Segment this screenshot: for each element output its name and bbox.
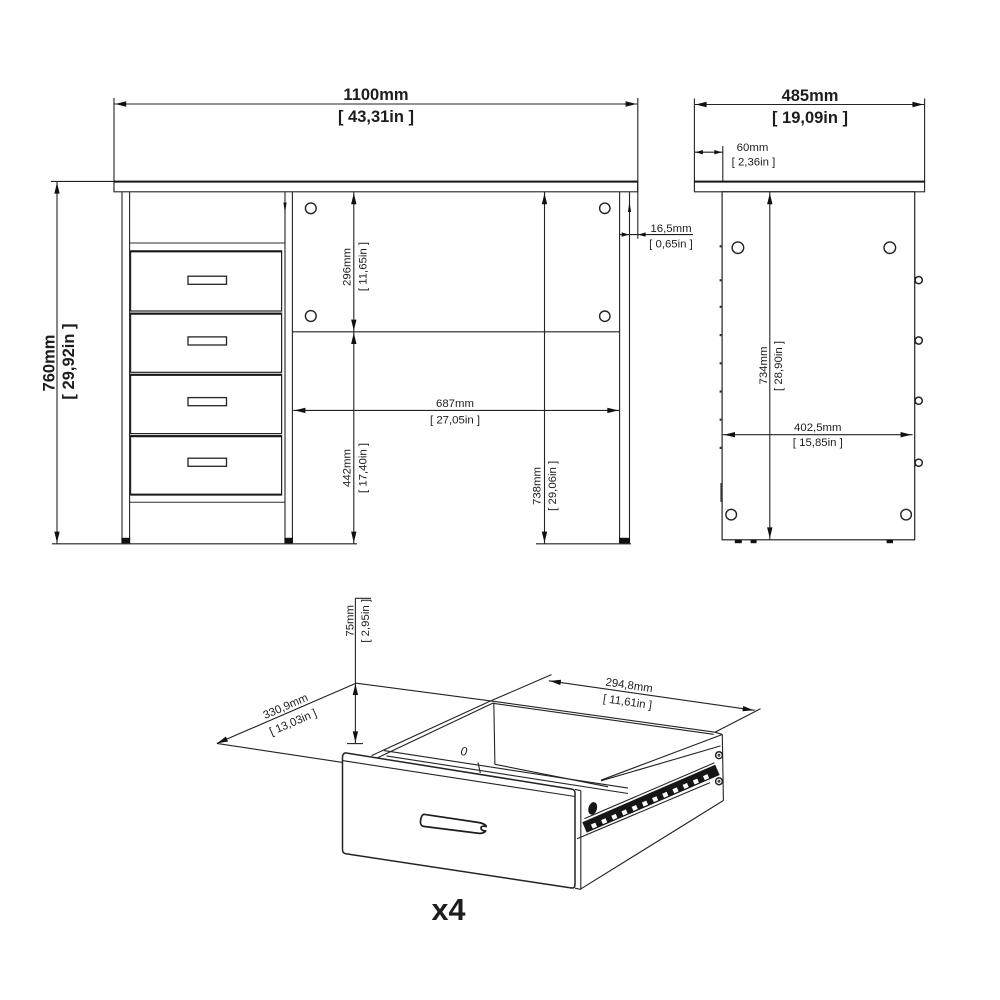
svg-text:402,5mm: 402,5mm: [794, 422, 841, 434]
svg-text:760mm: 760mm: [41, 335, 59, 392]
svg-text:442mm: 442mm: [341, 449, 353, 487]
svg-text:x4: x4: [432, 893, 466, 927]
svg-text:60mm: 60mm: [737, 142, 769, 154]
svg-text:[ 2,36in ]: [ 2,36in ]: [732, 156, 776, 168]
svg-text:[ 27,05in ]: [ 27,05in ]: [430, 414, 480, 426]
svg-text:296mm: 296mm: [341, 248, 353, 286]
svg-text:738mm: 738mm: [532, 467, 544, 505]
svg-text:[ 19,09in ]: [ 19,09in ]: [772, 109, 848, 127]
svg-text:[ 11,65in ]: [ 11,65in ]: [357, 242, 369, 291]
svg-text:[ 43,31in ]: [ 43,31in ]: [338, 108, 414, 126]
svg-text:1100mm: 1100mm: [343, 86, 408, 104]
svg-text:[ 29,06in ]: [ 29,06in ]: [547, 461, 559, 511]
svg-text:16,5mm: 16,5mm: [650, 223, 691, 235]
svg-text:687mm: 687mm: [436, 398, 474, 410]
svg-text:0: 0: [460, 744, 468, 758]
svg-text:[ 29,92in ]: [ 29,92in ]: [60, 323, 78, 399]
svg-text:[ 0,65in ]: [ 0,65in ]: [649, 238, 693, 250]
svg-text:734mm: 734mm: [758, 347, 770, 385]
svg-text:[ 15,85in ]: [ 15,85in ]: [793, 437, 843, 449]
svg-text:485mm: 485mm: [782, 87, 839, 105]
svg-text:[ 2,95in ]: [ 2,95in ]: [360, 599, 372, 643]
svg-text:75mm: 75mm: [344, 605, 356, 637]
svg-text:[ 28,90in ]: [ 28,90in ]: [773, 341, 785, 391]
svg-text:[ 17,40in ]: [ 17,40in ]: [357, 443, 369, 493]
